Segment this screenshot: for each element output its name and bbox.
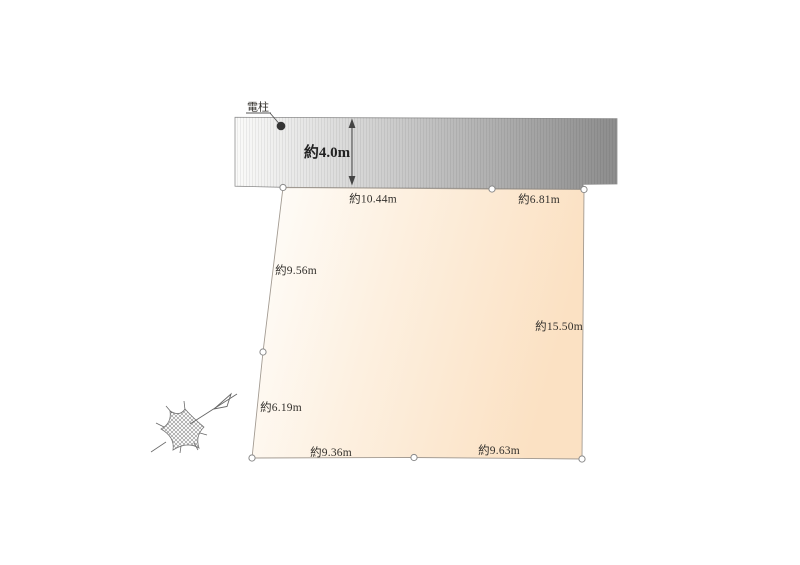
boundary-marker — [581, 186, 587, 192]
boundary-marker — [280, 184, 286, 190]
dim-road-width: 約4.0m — [304, 143, 351, 161]
dim-bottom-right: 約9.63m — [478, 443, 520, 457]
dim-top-left: 約10.44m — [349, 192, 397, 206]
boundary-marker — [411, 454, 417, 460]
land-plot-page: 電柱 約4.0m 約10.44m 約6.81m 約9.56m 約6.19m 約1… — [0, 0, 800, 565]
north-arrow — [151, 394, 237, 453]
dim-bottom-left: 約9.36m — [310, 445, 352, 459]
dim-right: 約15.50m — [535, 319, 583, 333]
road-texture — [235, 117, 617, 189]
road — [235, 117, 617, 189]
compass-needle-flag — [214, 394, 231, 409]
utility-pole-dot — [277, 122, 286, 131]
boundary-marker — [260, 349, 266, 355]
boundary-marker — [579, 456, 585, 462]
utility-pole-label: 電柱 — [247, 100, 269, 114]
dim-left-lower: 約6.19m — [260, 400, 302, 414]
site-plan-canvas: 電柱 約4.0m 約10.44m 約6.81m 約9.56m 約6.19m 約1… — [0, 0, 800, 565]
boundary-marker — [489, 186, 495, 192]
dim-left-upper: 約9.56m — [275, 263, 317, 277]
boundary-marker — [249, 455, 255, 461]
dim-top-right: 約6.81m — [518, 192, 560, 206]
compass-blob — [161, 409, 204, 450]
